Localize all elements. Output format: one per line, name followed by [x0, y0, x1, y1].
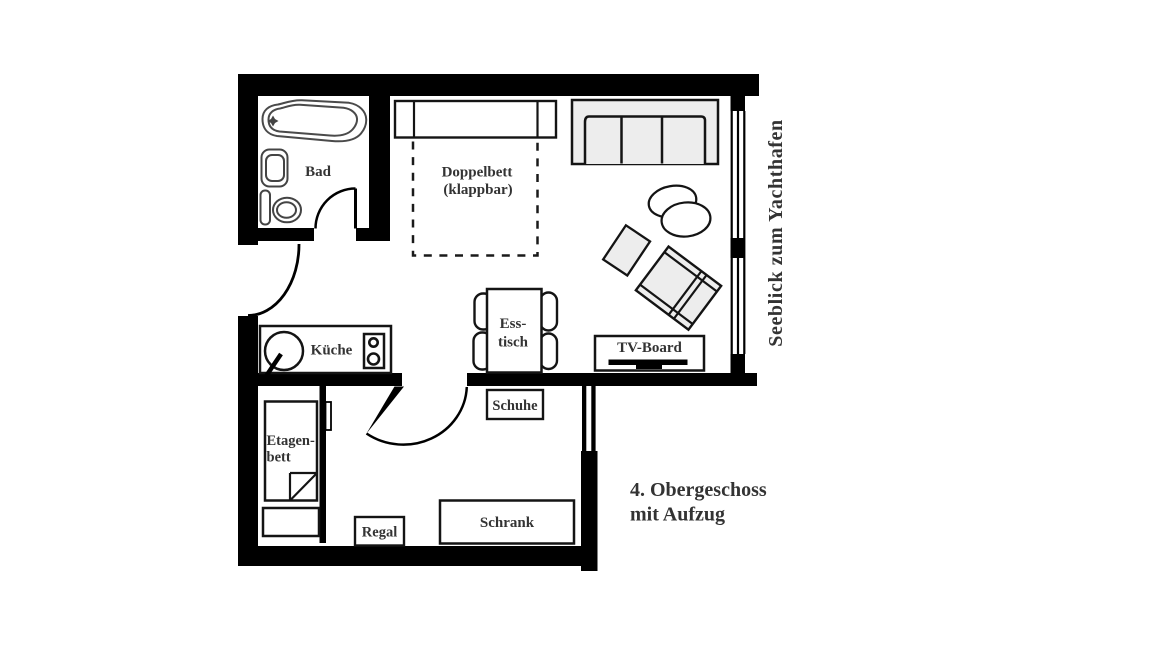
svg-text:Seeblick zum Yachthafen: Seeblick zum Yachthafen [765, 119, 787, 347]
svg-text:Regal: Regal [362, 525, 397, 541]
svg-text:Schuhe: Schuhe [492, 398, 538, 414]
svg-text:Etagen-: Etagen- [267, 433, 316, 449]
svg-text:tisch: tisch [498, 334, 529, 350]
svg-text:Bad: Bad [305, 164, 332, 180]
svg-text:4. Obergeschoss: 4. Obergeschoss [630, 479, 767, 501]
svg-text:Ess-: Ess- [500, 316, 527, 332]
svg-text:(klappbar): (klappbar) [443, 182, 512, 198]
svg-text:bett: bett [267, 450, 291, 466]
svg-text:TV-Board: TV-Board [617, 340, 682, 356]
svg-text:Doppelbett: Doppelbett [442, 165, 513, 181]
svg-text:mit Aufzug: mit Aufzug [630, 504, 725, 526]
svg-text:Schrank: Schrank [480, 515, 535, 531]
svg-text:Küche: Küche [311, 342, 353, 358]
